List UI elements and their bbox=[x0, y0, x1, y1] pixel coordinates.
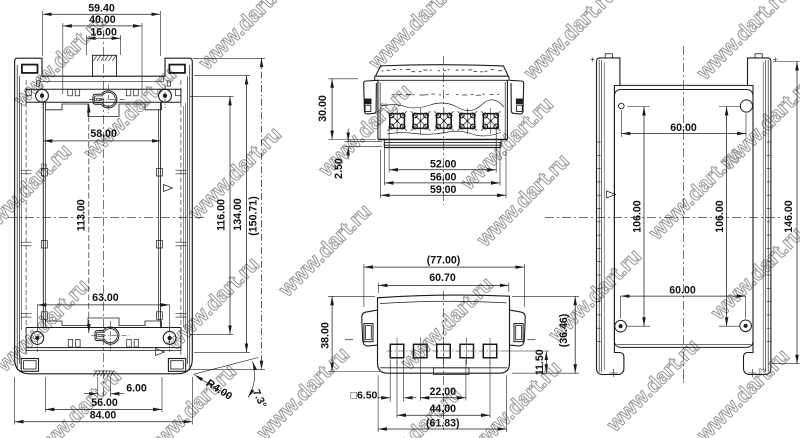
svg-text:106.00: 106.00 bbox=[714, 200, 726, 233]
svg-text:146.00: 146.00 bbox=[783, 200, 795, 233]
svg-text:(77.00): (77.00) bbox=[427, 255, 461, 267]
svg-text:2.50: 2.50 bbox=[333, 158, 345, 179]
svg-text:56.00: 56.00 bbox=[430, 171, 457, 183]
svg-text:(150.71): (150.71) bbox=[248, 196, 260, 235]
svg-text:22.00: 22.00 bbox=[430, 386, 457, 398]
svg-text:58.00: 58.00 bbox=[90, 128, 117, 140]
svg-text:60.70: 60.70 bbox=[429, 272, 456, 284]
svg-text:106.00: 106.00 bbox=[631, 200, 643, 233]
svg-text:40.00: 40.00 bbox=[89, 14, 116, 26]
svg-text:56.00: 56.00 bbox=[91, 397, 118, 409]
svg-text:16.00: 16.00 bbox=[90, 26, 117, 38]
svg-text:(36.46): (36.46) bbox=[558, 314, 570, 348]
svg-text:52.00: 52.00 bbox=[430, 158, 457, 170]
svg-text:30.00: 30.00 bbox=[317, 95, 329, 122]
svg-text:63.00: 63.00 bbox=[92, 292, 119, 304]
svg-text:134.00: 134.00 bbox=[232, 198, 244, 231]
svg-text:113.00: 113.00 bbox=[76, 199, 88, 231]
svg-text:□6.50: □6.50 bbox=[351, 389, 378, 401]
svg-text:60.00: 60.00 bbox=[670, 122, 697, 134]
svg-text:11.50: 11.50 bbox=[534, 349, 546, 375]
svg-text:59.00: 59.00 bbox=[430, 184, 457, 196]
svg-text:6.00: 6.00 bbox=[126, 383, 147, 395]
svg-text:44.00: 44.00 bbox=[430, 403, 457, 415]
svg-text:84.00: 84.00 bbox=[90, 409, 117, 421]
svg-text:116.00: 116.00 bbox=[216, 199, 228, 231]
svg-text:59.40: 59.40 bbox=[88, 3, 115, 15]
svg-text:60.00: 60.00 bbox=[669, 285, 696, 297]
svg-text:(61.83): (61.83) bbox=[426, 418, 460, 430]
svg-text:38.00: 38.00 bbox=[320, 322, 332, 349]
